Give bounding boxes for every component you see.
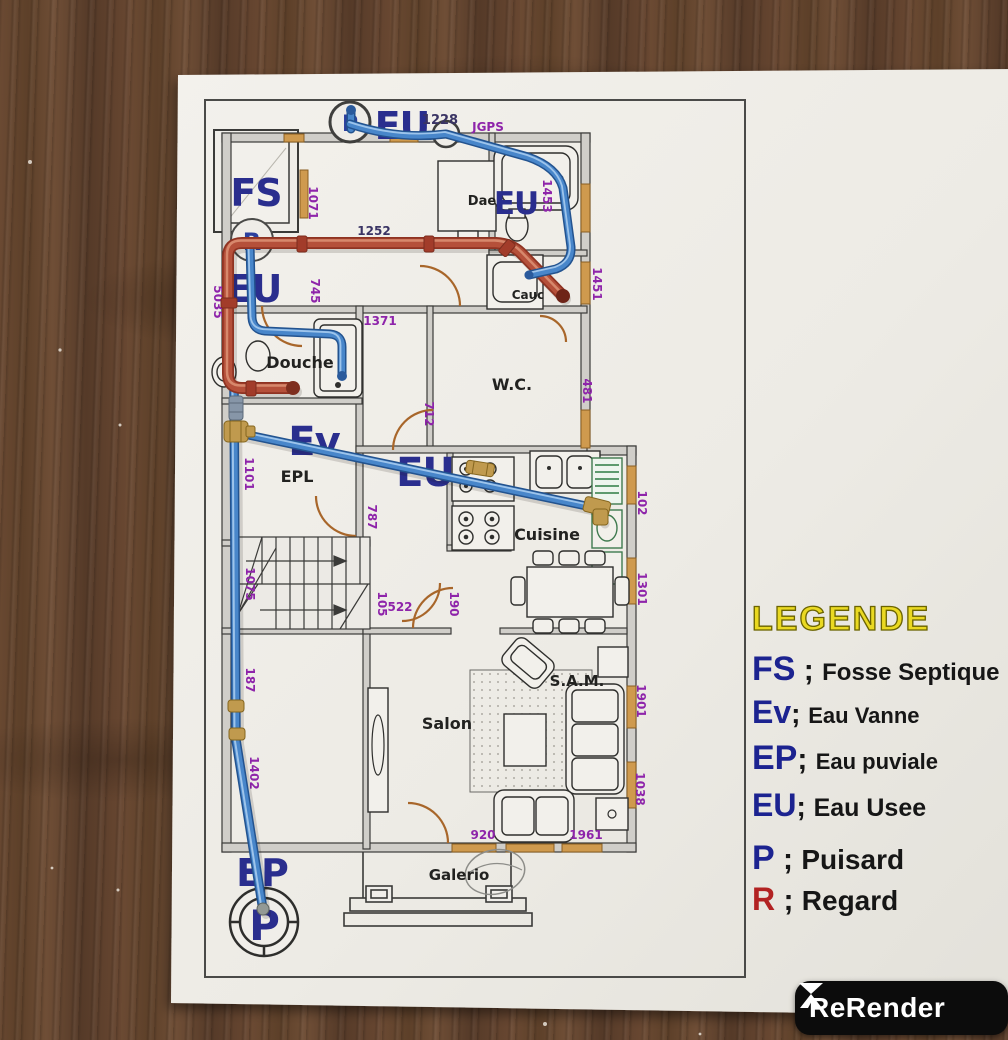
note-1228: 1228: [422, 113, 458, 128]
dim-label: 1451: [590, 267, 604, 300]
legend-abbr-eu: EU: [752, 787, 796, 824]
steel-coupling: [229, 396, 243, 420]
room-label-cuisine: Cuisine: [514, 525, 580, 544]
legend-entry-r: R ; Regard: [752, 881, 898, 918]
legend-sep: ;: [775, 884, 802, 918]
legend-entry-ep: EP; Eau puviale: [752, 739, 938, 778]
legend-label-fs: Fosse Septique: [822, 659, 999, 687]
dim-label: 481: [580, 378, 594, 403]
label-eu-top-right: EU: [494, 186, 538, 222]
dim-label: 522: [387, 600, 412, 614]
dim-label: 102: [635, 490, 649, 515]
legend-label-ep: Eau puviale: [816, 749, 938, 775]
dim-label: 190: [447, 591, 461, 616]
room-label-salon: Salon: [422, 714, 472, 733]
rerender-watermark: ReRender: [795, 981, 1008, 1035]
legend-label-ev: Eau Vanne: [808, 703, 919, 729]
dim-label: 712: [422, 401, 436, 426]
legend-abbr-p: P: [752, 839, 775, 878]
dim-label: 1301: [635, 572, 649, 605]
dim-label: 1371: [363, 314, 396, 328]
room-label-sam: S.A.M.: [550, 672, 605, 690]
dim-label: 1961: [569, 828, 602, 842]
rerender-logo-icon: [795, 981, 827, 1011]
room-label-dae: Dae: [468, 194, 497, 209]
rerender-brand-text: ReRender: [809, 992, 945, 1024]
room-label-cauc: Cauc: [512, 288, 545, 302]
dim-label: 1101: [242, 457, 256, 490]
legend-sep: ;: [775, 843, 802, 877]
legend-entry-p: P ; Puisard: [752, 839, 904, 878]
legend-sep: ;: [797, 743, 815, 777]
label-fs: FS: [230, 171, 281, 215]
room-label-galerie: Galerio: [429, 866, 490, 884]
legend-entry-fs: FS ; Fosse Septique: [752, 650, 1000, 689]
dim-label: 745: [308, 278, 322, 303]
dim-label: 1038: [633, 772, 647, 805]
legend-sep: ;: [795, 654, 822, 688]
legend-abbr-r: R: [752, 881, 775, 918]
legend-abbr-fs: FS: [752, 650, 795, 689]
dim-label: 187: [243, 667, 257, 692]
dim-label: 787: [365, 504, 379, 529]
legend-label-r: Regard: [802, 885, 898, 917]
legend-abbr-ev: Ev: [752, 694, 791, 731]
legend-sep: ;: [791, 698, 808, 730]
room-label-douche: Douche: [266, 353, 334, 372]
dim-label: 1075: [243, 567, 257, 600]
legend-abbr-ep: EP: [752, 739, 797, 778]
legend-entry-ev: Ev; Eau Vanne: [752, 694, 920, 731]
legend-title: LEGENDE: [752, 600, 930, 639]
legend: LEGENDE FS ; Fosse Septique Ev; Eau Vann…: [748, 600, 1008, 936]
dim-label: 920: [470, 828, 495, 842]
dim-label: 1453: [540, 179, 554, 212]
legend-label-p: Puisard: [801, 844, 904, 876]
room-label-epl: EPL: [281, 467, 314, 486]
legend-entry-eu: EU; Eau Usee: [752, 787, 926, 824]
room-label-wc: W.C.: [492, 375, 532, 394]
dim-label: JGPS: [471, 120, 504, 134]
note-1252: 1252: [357, 224, 390, 238]
dim-label: 1901: [634, 684, 648, 717]
dim-label: 1071: [306, 186, 320, 219]
legend-sep: ;: [796, 791, 813, 823]
legend-label-eu: Eau Usee: [814, 794, 927, 823]
